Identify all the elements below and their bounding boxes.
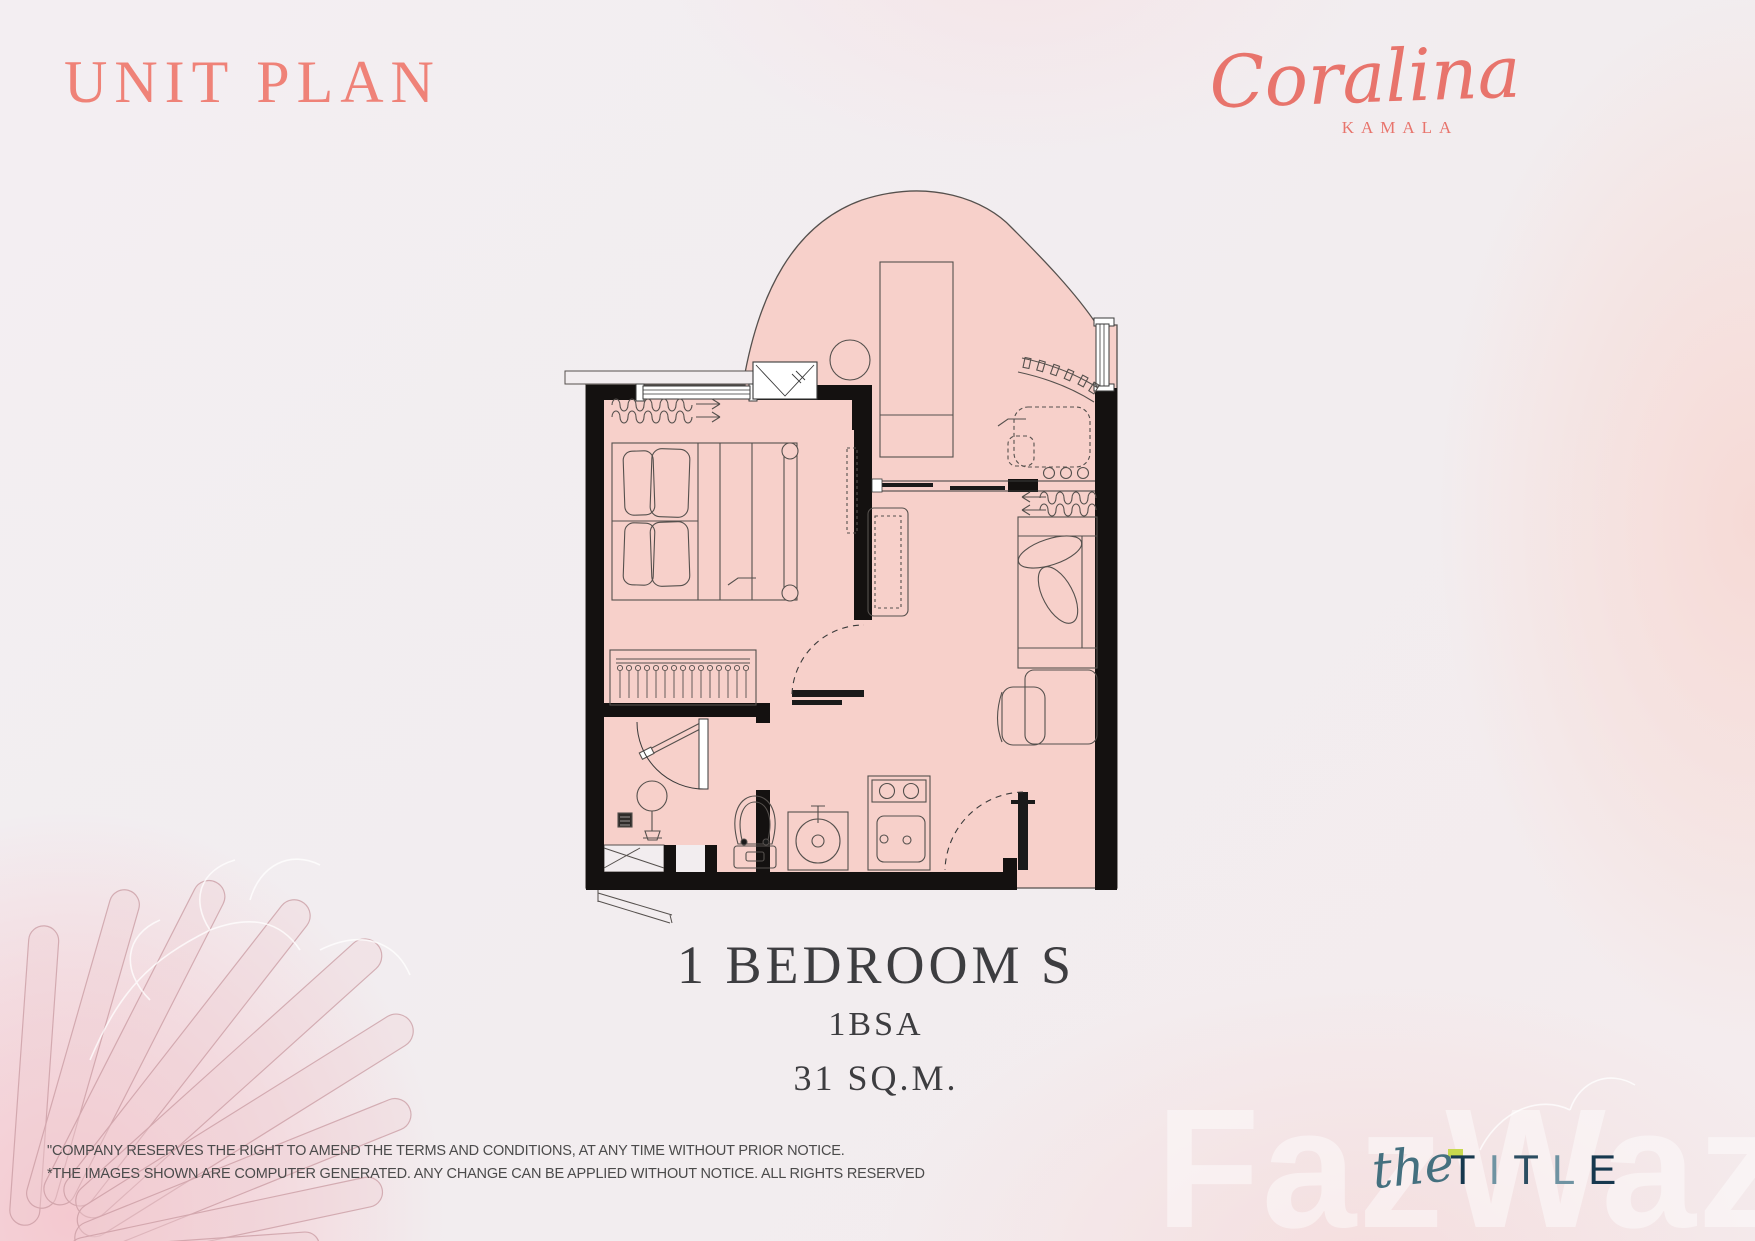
disclaimer-line-1: "COMPANY RESERVES THE RIGHT TO AMEND THE… [47,1140,925,1163]
unit-code: 1BSA [576,1006,1176,1044]
terrace-edge-sill [565,371,753,384]
developer-logo-prefix: the [1369,1134,1457,1200]
developer-logo-letter: L [1552,1146,1575,1194]
developer-logo-name: TITLE [1450,1146,1629,1194]
brochure-page: FazWaz UNIT PLAN Coralina KAMALA 1 BEDRO… [0,0,1755,1241]
developer-logo: the TITLE [1372,1138,1629,1196]
unit-type: 1 BEDROOM S [576,938,1176,992]
developer-logo-letter: T [1513,1146,1539,1194]
terrace-door [753,362,817,399]
disclaimer: "COMPANY RESERVES THE RIGHT TO AMEND THE… [47,1140,925,1186]
disclaimer-line-2: *THE IMAGES SHOWN ARE COMPUTER GENERATED… [47,1163,925,1186]
page-title: UNIT PLAN [64,48,441,117]
brand-name: Coralina [1199,34,1531,121]
unit-footprint [586,191,1117,888]
wall-niche [676,845,705,872]
unit-info: 1 BEDROOM S 1BSA 31 SQ.M. [576,938,1176,1099]
unit-area: 31 SQ.M. [576,1057,1176,1099]
developer-logo-letter: E [1588,1146,1616,1194]
developer-logo-letter: I [1489,1146,1501,1194]
brand-logo: Coralina KAMALA [1200,40,1530,138]
